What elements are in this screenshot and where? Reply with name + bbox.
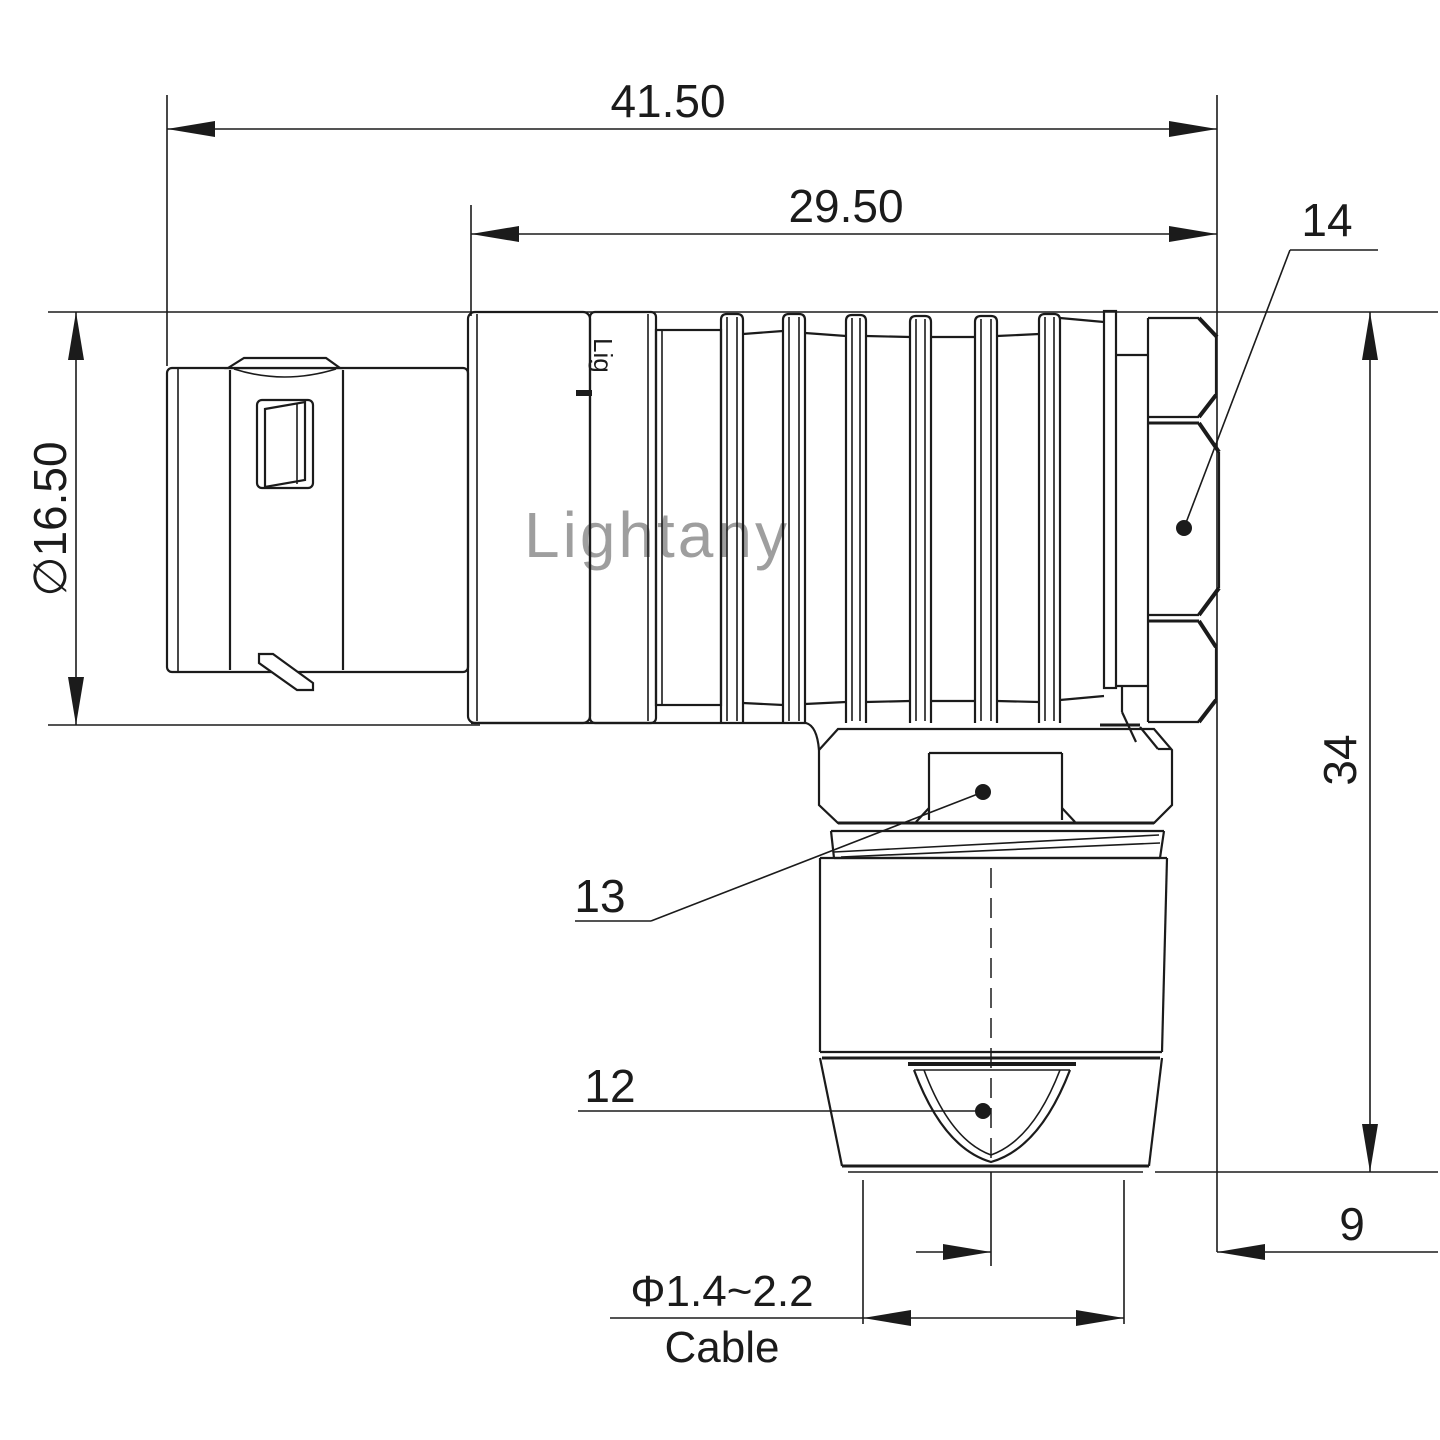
dim-front-length: 29.50: [471, 180, 1217, 242]
dim-cable-range-text: Φ1.4~2.2: [630, 1267, 813, 1316]
technical-drawing-canvas: Lightany: [0, 0, 1440, 1440]
cable-word-text: Cable: [665, 1323, 780, 1372]
nut-corner-chamfer: [1199, 588, 1219, 615]
dim-overall-length-text: 41.50: [610, 75, 725, 127]
arrow-down: [68, 677, 84, 725]
dome-arch-inner: [924, 1070, 1060, 1155]
valley-top: [997, 334, 1039, 336]
callout-12: 12: [578, 1060, 991, 1119]
exit-barrel: [820, 858, 1167, 1058]
cone-left: [820, 1058, 842, 1166]
ring-right: [1160, 831, 1164, 858]
arrow-left: [471, 226, 519, 242]
valley-top: [866, 336, 910, 337]
nut-corner-chamfer: [1199, 395, 1216, 417]
end-cap-band: [1104, 311, 1116, 688]
rib-4: [910, 316, 931, 723]
ring-left: [831, 831, 834, 858]
dim-overall-length: 41.50: [167, 75, 1217, 137]
brand-mark: [576, 390, 592, 396]
dim-cable: Φ1.4~2.2 Cable: [610, 1180, 1124, 1372]
serrated-ring: [831, 831, 1164, 858]
valley-bottom: [866, 701, 910, 702]
dim-exit-offset: 9: [916, 1198, 1438, 1260]
cone-right: [1149, 1058, 1162, 1166]
end-section-bottom: [1060, 696, 1104, 700]
valley-bottom: [997, 701, 1039, 702]
callout-13-leader: [651, 792, 983, 921]
end-section-top: [1060, 318, 1104, 322]
callout-14-leader: [1184, 250, 1290, 528]
dim-total-height-text: 34: [1314, 734, 1366, 785]
callout-13-text: 13: [574, 870, 625, 922]
ring-front-arc: [234, 369, 336, 377]
end-section: [1060, 311, 1148, 700]
callout-13-dot: [975, 784, 991, 800]
callout-12-dot: [975, 1103, 991, 1119]
ring-serration: [841, 843, 1160, 857]
bayonet-lug: [228, 358, 340, 368]
rear-shell: [167, 358, 468, 690]
valley-top: [743, 331, 783, 334]
arrow-down: [1362, 1124, 1378, 1172]
vertical-exit: [819, 729, 1172, 1266]
callout-14-dot: [1176, 520, 1192, 536]
rib-5: [975, 316, 997, 723]
arrow-right: [943, 1244, 991, 1260]
arrow-right: [1169, 226, 1217, 242]
callout-12-text: 12: [584, 1060, 635, 1112]
elbow-corner: [471, 686, 1171, 750]
arrow-left: [167, 121, 215, 137]
bayonet-window-inner: [265, 402, 305, 487]
hex-coupling-nut: [1148, 318, 1219, 722]
arrow-up: [1362, 312, 1378, 360]
callout-14: 14: [1176, 194, 1378, 536]
body-bottom-outline: [471, 723, 819, 750]
valley-bottom: [805, 702, 846, 704]
back-nut-facet-chamfer: [1062, 808, 1075, 822]
dim-shell-diameter-text: ∅16.50: [24, 441, 76, 596]
nut-top-chamfer: [1199, 318, 1217, 337]
brand-fragment-text: Lig: [588, 338, 618, 373]
valley-bottom: [743, 703, 783, 705]
arrow-left: [863, 1310, 911, 1326]
rib-6: [1039, 314, 1060, 723]
dim-total-height: 34: [1314, 312, 1378, 1172]
corner-step-diag: [1122, 712, 1136, 742]
barrel-right: [1162, 858, 1167, 1052]
dome-arch-outer: [914, 1070, 1070, 1162]
callout-14-text: 14: [1301, 194, 1352, 246]
back-nut-outline: [819, 729, 1172, 823]
rear-shell-outline: [167, 368, 468, 672]
dim-exit-offset-text: 9: [1339, 1198, 1365, 1250]
back-hex-nut: [819, 729, 1172, 823]
nut-corner-chamfer: [1199, 423, 1219, 452]
arrow-right: [1169, 121, 1217, 137]
callouts: 14 13 12: [574, 194, 1378, 1119]
nut-bottom-chamfer: [1199, 700, 1216, 722]
arrow-right: [1076, 1310, 1124, 1326]
drawing-page: Lightany: [0, 0, 1440, 1440]
rib-3: [846, 315, 866, 723]
arrow-up: [68, 312, 84, 360]
dim-front-length-text: 29.50: [788, 180, 903, 232]
nut-corner-chamfer: [1199, 621, 1216, 647]
dim-shell-diameter: ∅16.50: [24, 312, 84, 725]
arrow-left: [1217, 1244, 1265, 1260]
valley-top: [805, 333, 846, 336]
